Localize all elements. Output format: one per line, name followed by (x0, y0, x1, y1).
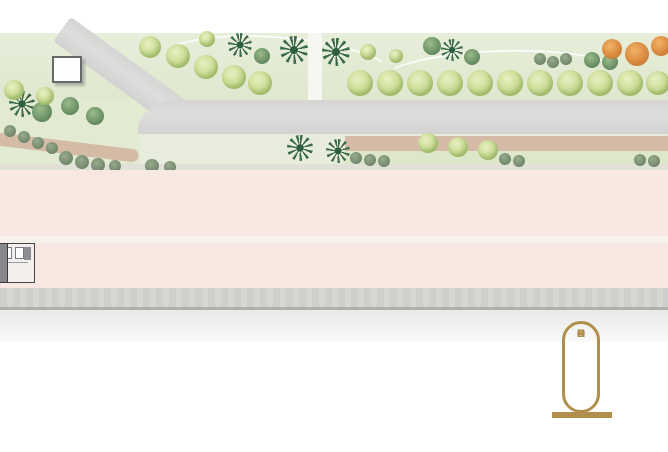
tree (377, 70, 403, 96)
tree (36, 87, 54, 105)
tree (418, 133, 438, 153)
pharos-logo-letter: S (577, 329, 584, 340)
bush (547, 56, 559, 68)
tree (166, 44, 190, 68)
bush (59, 151, 73, 165)
tree (423, 37, 441, 55)
tree (86, 107, 104, 125)
tree (194, 55, 218, 79)
bush (534, 53, 546, 65)
building-row-top: 31.00OfficeT 1- 0131.00OfficeT 1- 0231.0… (0, 201, 668, 236)
terracotta-path-right (345, 136, 668, 151)
tree (527, 70, 553, 96)
tree (617, 70, 643, 96)
tree (448, 137, 468, 157)
tree (61, 97, 79, 115)
kiosk-structure (52, 56, 82, 83)
bush (364, 154, 376, 166)
tree (587, 70, 613, 96)
bush (634, 154, 646, 166)
tree (32, 102, 52, 122)
palm-tree (326, 139, 350, 163)
bush (378, 155, 390, 167)
corridor (0, 236, 668, 243)
tree (464, 49, 480, 65)
orange-tree (602, 39, 622, 59)
tree (437, 70, 463, 96)
bush (499, 153, 511, 165)
bush (4, 125, 16, 137)
bush (350, 152, 362, 164)
entrance-path (308, 33, 322, 101)
bush (648, 155, 660, 167)
tree (646, 71, 668, 95)
palm-tree (322, 38, 350, 66)
palm-tree (280, 36, 308, 64)
orange-tree (651, 36, 668, 56)
orange-tree (625, 42, 649, 66)
palm-tree (441, 39, 463, 61)
pharos-logo-bar (552, 412, 612, 418)
palm-tree (287, 135, 313, 161)
palm-tree (228, 33, 252, 57)
tree (222, 65, 246, 89)
bush (75, 155, 89, 169)
tree (360, 44, 376, 60)
tree (199, 31, 215, 47)
bush (513, 155, 525, 167)
main-road (138, 100, 668, 134)
tree (407, 70, 433, 96)
tree (467, 70, 493, 96)
tree (139, 36, 161, 58)
tree (557, 70, 583, 96)
tree (248, 71, 272, 95)
bush (32, 137, 44, 149)
bush (46, 142, 58, 154)
building-row-bottom: 33.00OfficeT 1- 2633.00OfficeT 1- 2733.0… (0, 243, 668, 283)
site-plan-canvas: 31.00OfficeT 1- 0131.00OfficeT 1- 0231.0… (0, 0, 668, 452)
south-road (0, 288, 668, 307)
tree (347, 70, 373, 96)
tree (254, 48, 270, 64)
bush (18, 131, 30, 143)
bush (560, 53, 572, 65)
tree (584, 52, 600, 68)
pharos-logo: PHAROS (562, 321, 600, 413)
tree (497, 70, 523, 96)
building-row-bottom-right: 34.00OfficeT 1- 3833.00OfficeT 1- 3933.0… (0, 243, 285, 283)
tree (478, 140, 498, 160)
tree (4, 80, 24, 100)
tree (389, 49, 403, 63)
